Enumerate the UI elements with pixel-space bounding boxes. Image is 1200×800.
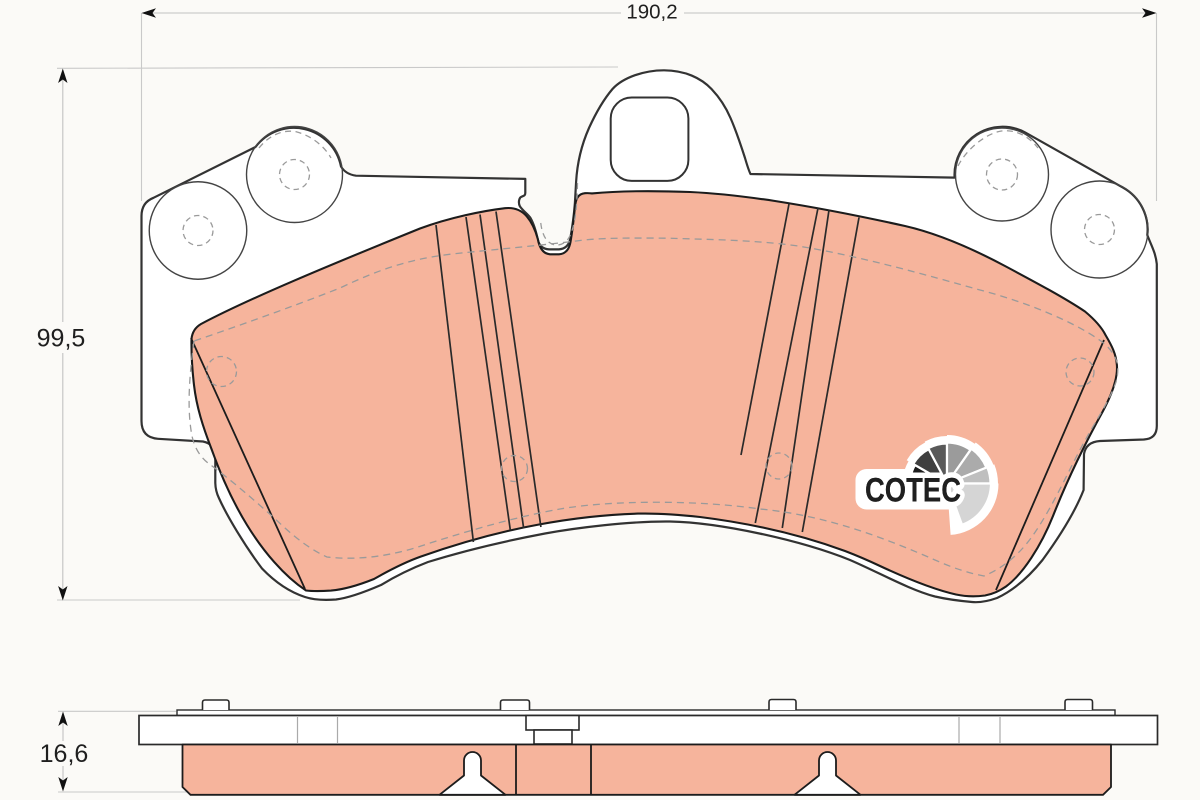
svg-text:99,5: 99,5 (37, 325, 86, 353)
svg-text:190,2: 190,2 (626, 1, 677, 24)
svg-text:16,6: 16,6 (40, 740, 89, 768)
svg-text:COTEC: COTEC (865, 472, 961, 510)
